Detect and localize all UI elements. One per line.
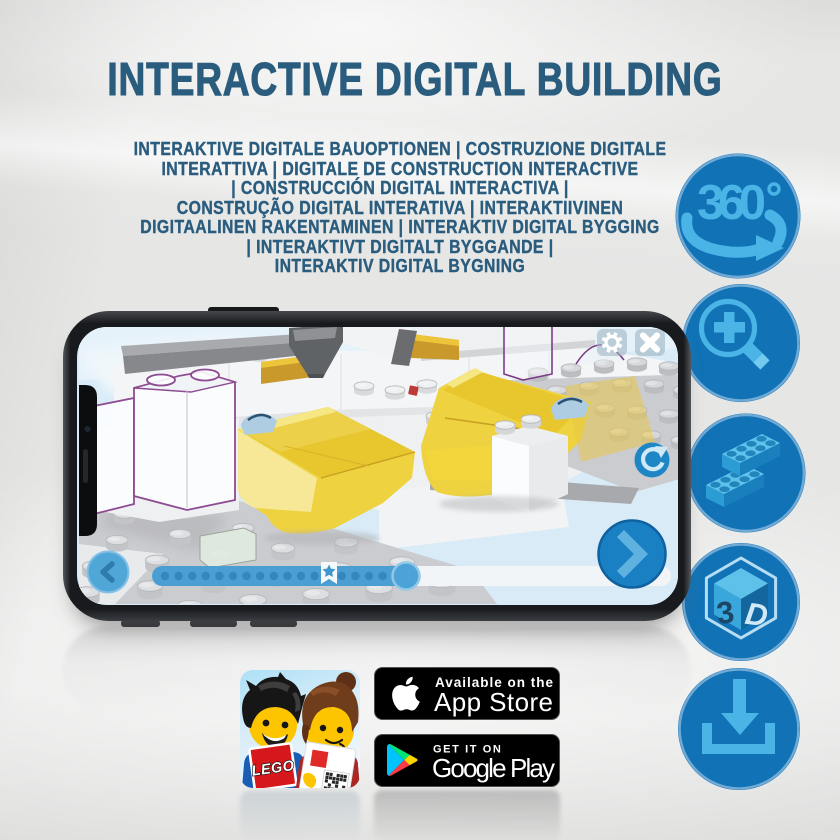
svg-text:360: 360 xyxy=(697,176,765,230)
svg-text:Google Play: Google Play xyxy=(432,753,555,783)
svg-text:App Store: App Store xyxy=(434,687,553,717)
